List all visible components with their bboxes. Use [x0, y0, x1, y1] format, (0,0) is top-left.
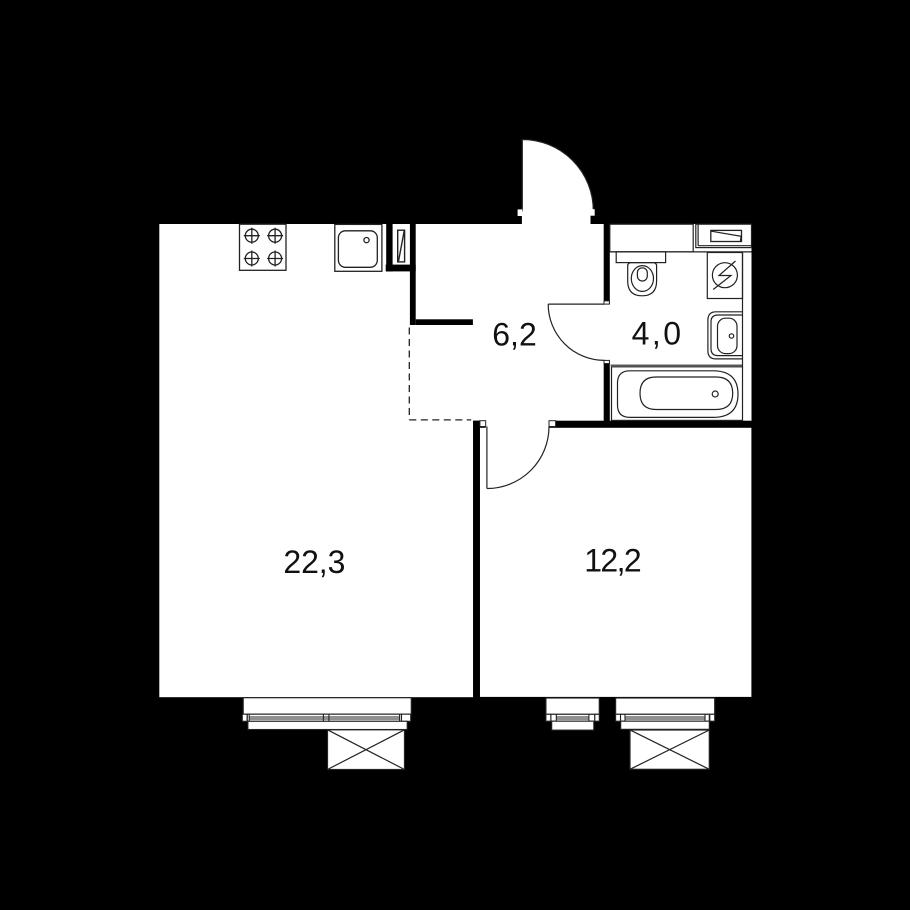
svg-text:22,3: 22,3	[283, 544, 345, 580]
svg-text:4,0: 4,0	[632, 316, 682, 352]
svg-text:12,2: 12,2	[584, 543, 642, 579]
svg-text:6,2: 6,2	[492, 316, 537, 352]
